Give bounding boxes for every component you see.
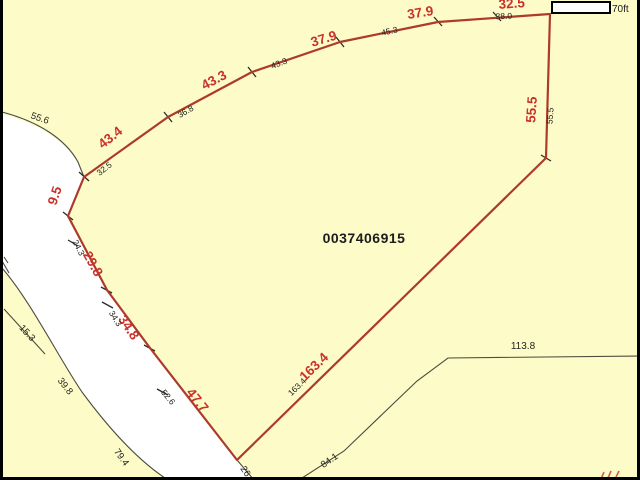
dimension-label-black: 38.0 <box>495 11 512 22</box>
parcel-map-canvas[interactable]: 9.543.443.337.937.932.555.5163.447.734.8… <box>0 0 640 480</box>
parcel-id-label: 0037406915 <box>323 230 406 246</box>
dimension-label-black: 113.8 <box>511 341 536 352</box>
scale-bar-label: 70ft <box>612 4 629 15</box>
dimension-label-red: 55.5 <box>523 96 540 124</box>
scale-bar: 70ft <box>552 2 629 15</box>
scale-bar-box <box>552 2 610 13</box>
parcel-map-view[interactable]: 9.543.443.337.937.932.555.5163.447.734.8… <box>0 0 640 480</box>
dimension-label-black: 55.5 <box>544 107 555 124</box>
frame-left <box>0 0 3 480</box>
